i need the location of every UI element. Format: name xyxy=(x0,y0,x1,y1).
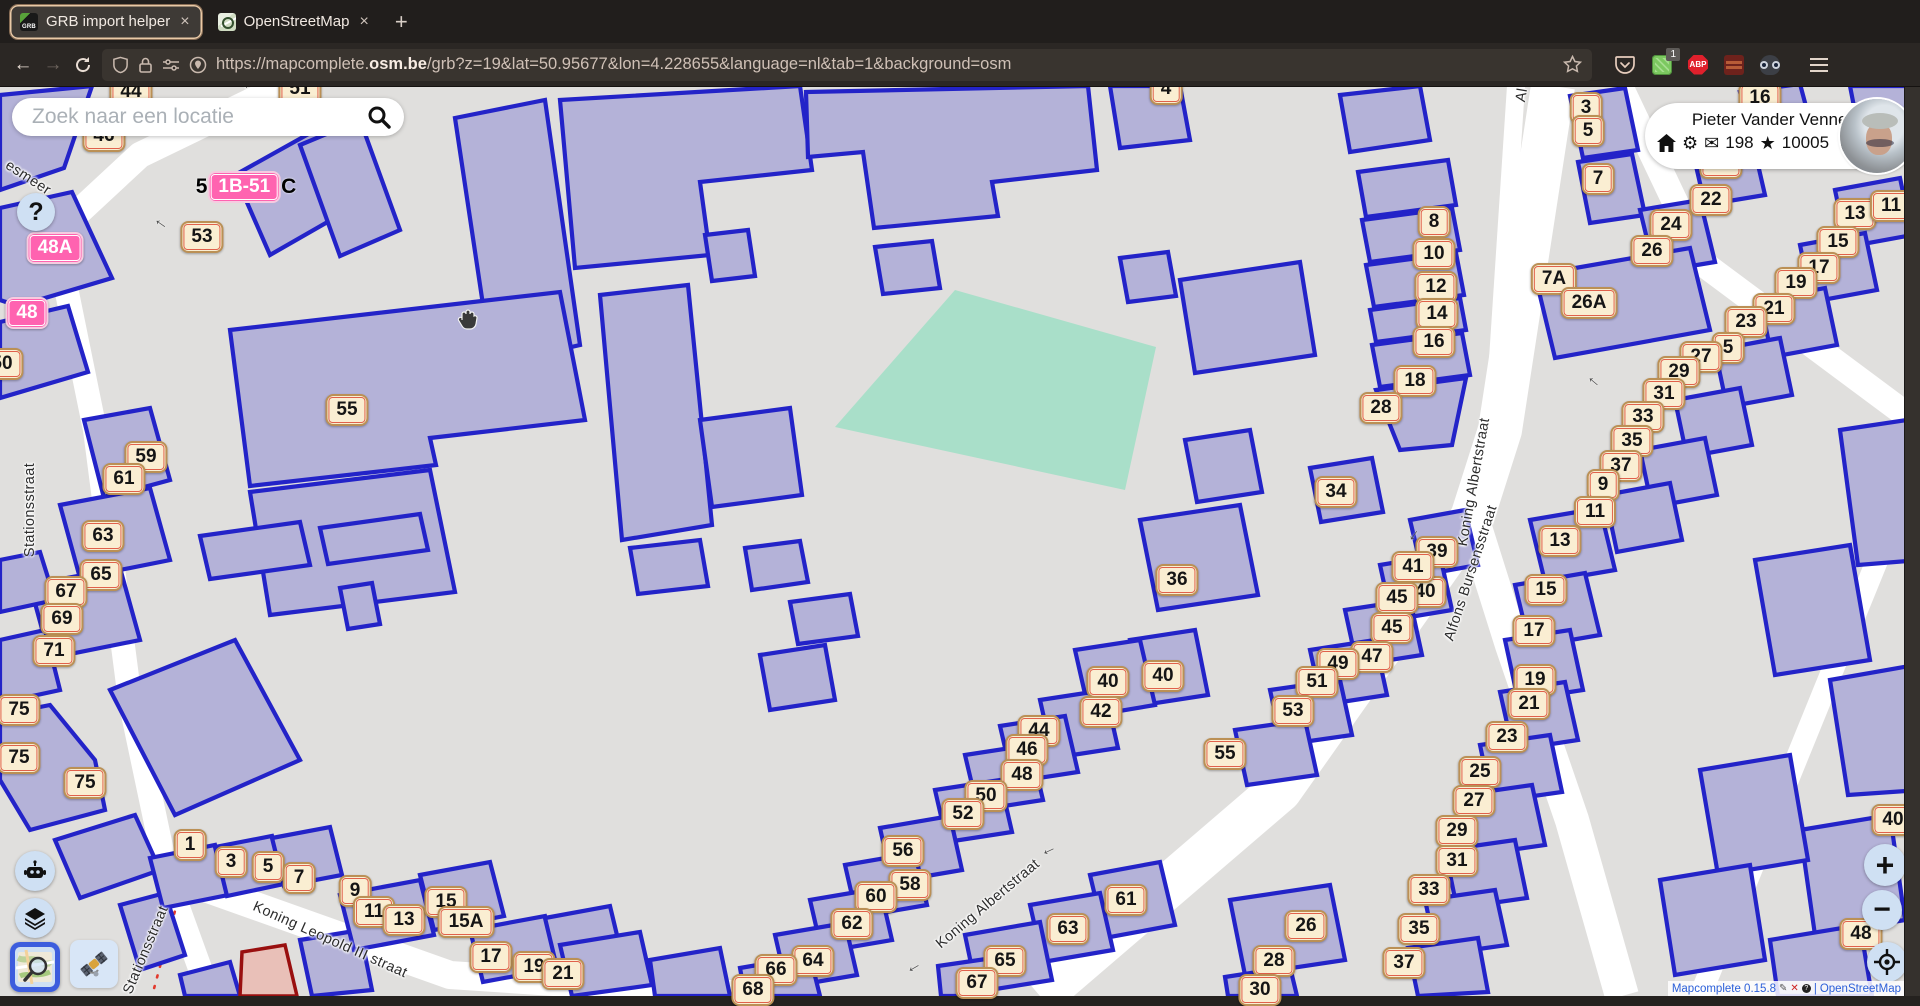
crosshair-icon xyxy=(1874,949,1900,975)
building-polygon[interactable] xyxy=(1660,865,1765,975)
url-domain: osm.be xyxy=(369,55,427,73)
building-polygon[interactable] xyxy=(60,488,170,578)
user-name: Pieter Vander Vennet xyxy=(1687,110,1857,130)
back-button[interactable]: ← xyxy=(8,54,38,76)
automation-robot-button[interactable] xyxy=(15,851,55,891)
contributors-icon: ✎ xyxy=(1779,983,1787,994)
building-polygon[interactable] xyxy=(705,230,755,281)
map-attribution[interactable]: Mapcomplete 0.15.8 ✎ ✕ ? | OpenStreetMap xyxy=(1668,981,1905,996)
building-polygon[interactable] xyxy=(1340,86,1430,152)
messages-count: 198 xyxy=(1725,133,1753,153)
map-with-magnifier-icon xyxy=(16,948,54,986)
building-polygon[interactable] xyxy=(745,541,808,590)
tab-bar: GRB GRB import helper × OpenStreetMap × … xyxy=(0,0,1920,43)
url-text[interactable]: https://mapcomplete.osm.be/grb?z=19&lat=… xyxy=(216,55,1554,74)
menu-icon[interactable] xyxy=(1810,58,1828,72)
tab-label: OpenStreetMap xyxy=(244,13,350,30)
building-polygon[interactable] xyxy=(760,645,835,710)
building-polygon[interactable] xyxy=(1755,545,1870,675)
search-input[interactable] xyxy=(30,104,366,130)
building-polygon[interactable] xyxy=(875,241,940,294)
user-panel[interactable]: Pieter Vander Vennet ⚙ ✉ 198 ★ 10005 xyxy=(1645,103,1918,169)
url-path: /grb?z=19&lat=50.95677&lon=4.228655&lang… xyxy=(427,55,1011,73)
bookmark-star-icon[interactable] xyxy=(1563,55,1582,74)
building-polygon[interactable] xyxy=(790,594,858,644)
zoom-out-button[interactable]: − xyxy=(1862,890,1902,930)
building-polygon[interactable] xyxy=(700,408,802,507)
building-polygon[interactable] xyxy=(1110,86,1190,148)
close-tab-icon[interactable]: × xyxy=(357,14,370,30)
building-polygon[interactable] xyxy=(1530,508,1615,582)
satellite-icon xyxy=(76,946,112,982)
building-polygon[interactable] xyxy=(420,862,504,930)
map-extension-icon[interactable]: 1 xyxy=(1652,55,1672,75)
extension-badge: 1 xyxy=(1666,48,1680,61)
tracking-protection-shield-icon[interactable] xyxy=(112,56,129,74)
tab-grb-import-helper[interactable]: GRB GRB import helper × xyxy=(10,5,202,39)
building-polygon[interactable] xyxy=(1230,885,1345,975)
changeset-count: 10005 xyxy=(1782,133,1829,153)
grb-import-candidate-building[interactable] xyxy=(240,945,297,996)
map-canvas[interactable] xyxy=(0,0,1920,996)
building-polygon[interactable] xyxy=(340,880,434,950)
geolocate-button[interactable] xyxy=(1867,942,1907,982)
tab-label: GRB import helper xyxy=(46,13,170,30)
license-icon: ? xyxy=(1802,984,1811,993)
messages-envelope-icon[interactable]: ✉ xyxy=(1704,134,1719,152)
home-icon[interactable] xyxy=(1657,134,1676,152)
building-polygon[interactable] xyxy=(1185,430,1262,502)
close-tab-icon[interactable]: × xyxy=(178,14,191,30)
changeset-star-icon: ★ xyxy=(1760,134,1776,152)
pocket-icon[interactable] xyxy=(1614,54,1636,76)
reload-icon[interactable] xyxy=(68,55,98,75)
zoom-in-label: + xyxy=(1876,847,1895,884)
location-permission-icon[interactable] xyxy=(189,56,207,74)
building-polygon[interactable] xyxy=(340,583,380,629)
connection-lock-icon[interactable] xyxy=(138,56,153,74)
building-polygon[interactable] xyxy=(1180,262,1315,373)
help-label: ? xyxy=(28,198,43,227)
building-polygon[interactable] xyxy=(630,540,708,594)
attribution-separator: | xyxy=(1814,983,1817,995)
building-polygon[interactable] xyxy=(560,932,652,996)
building-polygon[interactable] xyxy=(938,959,994,996)
permissions-sliders-icon[interactable] xyxy=(162,56,180,74)
grb-favicon-icon: GRB xyxy=(20,13,38,31)
robot-icon xyxy=(23,859,47,883)
zoom-out-label: − xyxy=(1873,893,1891,927)
new-tab-button[interactable]: + xyxy=(395,11,408,33)
settings-gear-icon[interactable]: ⚙ xyxy=(1682,134,1698,152)
privacy-goggles-icon[interactable] xyxy=(1760,55,1780,75)
tab-openstreetmap[interactable]: OpenStreetMap × xyxy=(208,5,381,39)
building-polygon[interactable] xyxy=(1120,252,1176,302)
building-polygon[interactable] xyxy=(1578,154,1645,223)
layers-button[interactable] xyxy=(15,898,55,938)
osm-favicon-icon xyxy=(218,13,236,31)
building-polygon[interactable] xyxy=(1700,755,1808,875)
browser-chrome: GRB GRB import helper × OpenStreetMap × … xyxy=(0,0,1920,86)
location-search-box[interactable] xyxy=(12,98,404,136)
building-polygon[interactable] xyxy=(1408,938,1488,996)
scrollbar[interactable] xyxy=(1904,86,1920,996)
attribution-app-version[interactable]: Mapcomplete 0.15.8 xyxy=(1672,983,1776,995)
extension-toolbar: 1 ABP xyxy=(1614,54,1828,76)
building-polygon[interactable] xyxy=(272,827,342,886)
background-map-style-button[interactable] xyxy=(10,942,60,992)
url-bar[interactable]: https://mapcomplete.osm.be/grb?z=19&lat=… xyxy=(102,49,1592,81)
building-polygon[interactable] xyxy=(1235,720,1317,785)
layers-icon xyxy=(23,906,47,930)
satellite-layer-button[interactable] xyxy=(70,940,118,988)
attribution-osm-link[interactable]: OpenStreetMap xyxy=(1820,983,1901,995)
building-polygon[interactable] xyxy=(1310,458,1383,522)
building-polygon[interactable] xyxy=(1570,88,1638,158)
search-icon[interactable] xyxy=(366,104,392,130)
building-polygon[interactable] xyxy=(1605,483,1682,552)
help-button[interactable]: ? xyxy=(17,193,55,231)
issue-icon: ✕ xyxy=(1790,983,1798,994)
zoom-in-button[interactable]: + xyxy=(1864,844,1906,886)
navigation-toolbar: ← → https://mapcomplete.osm.be/gr xyxy=(0,43,1920,87)
url-prefix: https://mapcomplete. xyxy=(216,55,369,73)
user-avatar[interactable] xyxy=(1840,99,1914,173)
cors-extension-icon[interactable] xyxy=(1724,55,1744,75)
building-polygon[interactable] xyxy=(1140,505,1258,610)
adblock-plus-icon[interactable]: ABP xyxy=(1688,55,1708,75)
forward-button[interactable]: → xyxy=(38,54,68,76)
